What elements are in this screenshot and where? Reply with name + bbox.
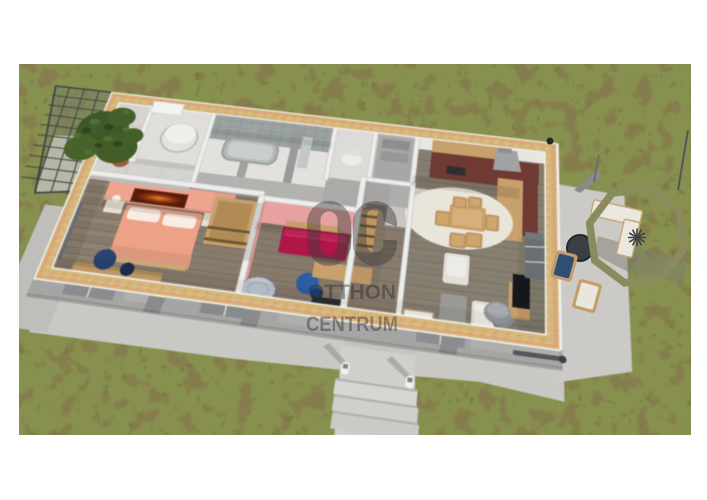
svg-text:OTTHON: OTTHON <box>308 280 396 304</box>
svg-text:CENTRUM: CENTRUM <box>306 312 398 336</box>
